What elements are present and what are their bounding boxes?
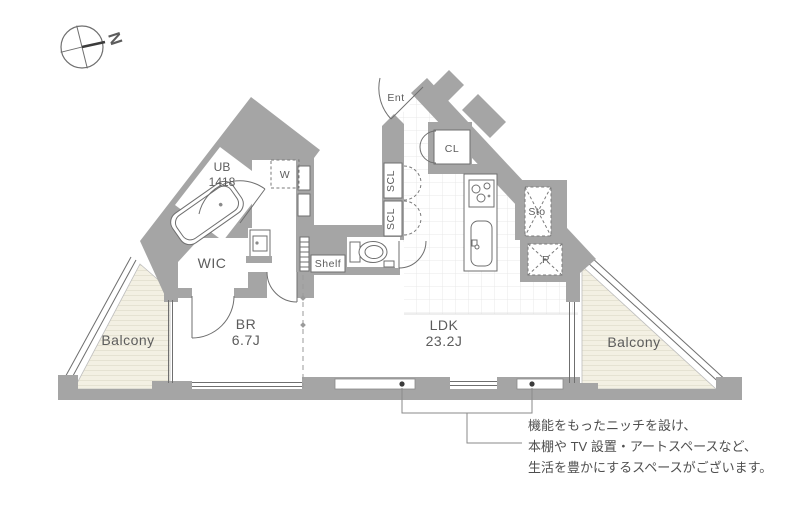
- wall-bottom-base: [58, 389, 742, 400]
- annotation-line-1: 機能をもったニッチを設け、: [528, 418, 696, 433]
- kitchen-sink: [471, 221, 492, 266]
- ldk-south-window-gap: [450, 377, 497, 389]
- floorplan-page: N UB 1418 WIC BR 6.7J LDK 23.2J Balcony …: [0, 0, 800, 515]
- wall-bottom-left-cap: [58, 375, 78, 389]
- wall-bottom-right-cap: [716, 377, 742, 389]
- label-ub: UB: [214, 160, 231, 174]
- kitchen-counter: [464, 174, 497, 271]
- label-balcony-left: Balcony: [101, 332, 154, 348]
- wic-door-opening: [192, 288, 234, 298]
- label-ldk-size: 23.2J: [426, 333, 463, 349]
- washbasin-counter: [246, 256, 272, 263]
- wall-br-west-stub: [164, 276, 178, 302]
- annotation-line-2: 本棚や TV 設置・アートスペースなど、: [528, 439, 757, 454]
- label-wic: WIC: [198, 255, 227, 271]
- label-washer: W: [280, 169, 290, 181]
- br-door-opening: [267, 272, 297, 298]
- label-scl-upper: SCL: [385, 170, 397, 192]
- stove: [469, 180, 494, 207]
- toilet-paper-holder: [384, 261, 394, 267]
- label-ldk: LDK: [430, 317, 459, 333]
- label-balcony-right: Balcony: [607, 334, 660, 350]
- label-sto: Sto: [528, 206, 545, 218]
- washbasin: [246, 230, 272, 263]
- wall-bottom-pier-right: [570, 383, 598, 389]
- niche-2: [517, 379, 563, 389]
- annotation-line-3: 生活を豊かにするスペースがございます。: [528, 460, 772, 475]
- niche-2-marker-dot: [529, 381, 534, 386]
- label-cl: CL: [445, 143, 459, 155]
- pipe-space-upper: [298, 166, 310, 190]
- wall-kitchen-top: [428, 164, 490, 174]
- label-refrigerator: R: [542, 254, 550, 266]
- label-shelf: Shelf: [315, 258, 341, 270]
- toilet-door-opening: [395, 240, 401, 268]
- label-ub-size: 1418: [209, 175, 236, 189]
- wall-right-stub: [566, 257, 580, 302]
- label-ent: Ent: [387, 92, 404, 104]
- floorplan-drawing: N UB 1418 WIC BR 6.7J LDK 23.2J Balcony …: [0, 0, 800, 515]
- niche-1-marker-dot: [399, 381, 404, 386]
- label-br: BR: [236, 316, 256, 332]
- label-scl-lower: SCL: [385, 208, 397, 230]
- shelf-unit: [300, 237, 309, 271]
- label-br-size: 6.7J: [232, 332, 260, 348]
- pipe-space-lower: [298, 194, 310, 216]
